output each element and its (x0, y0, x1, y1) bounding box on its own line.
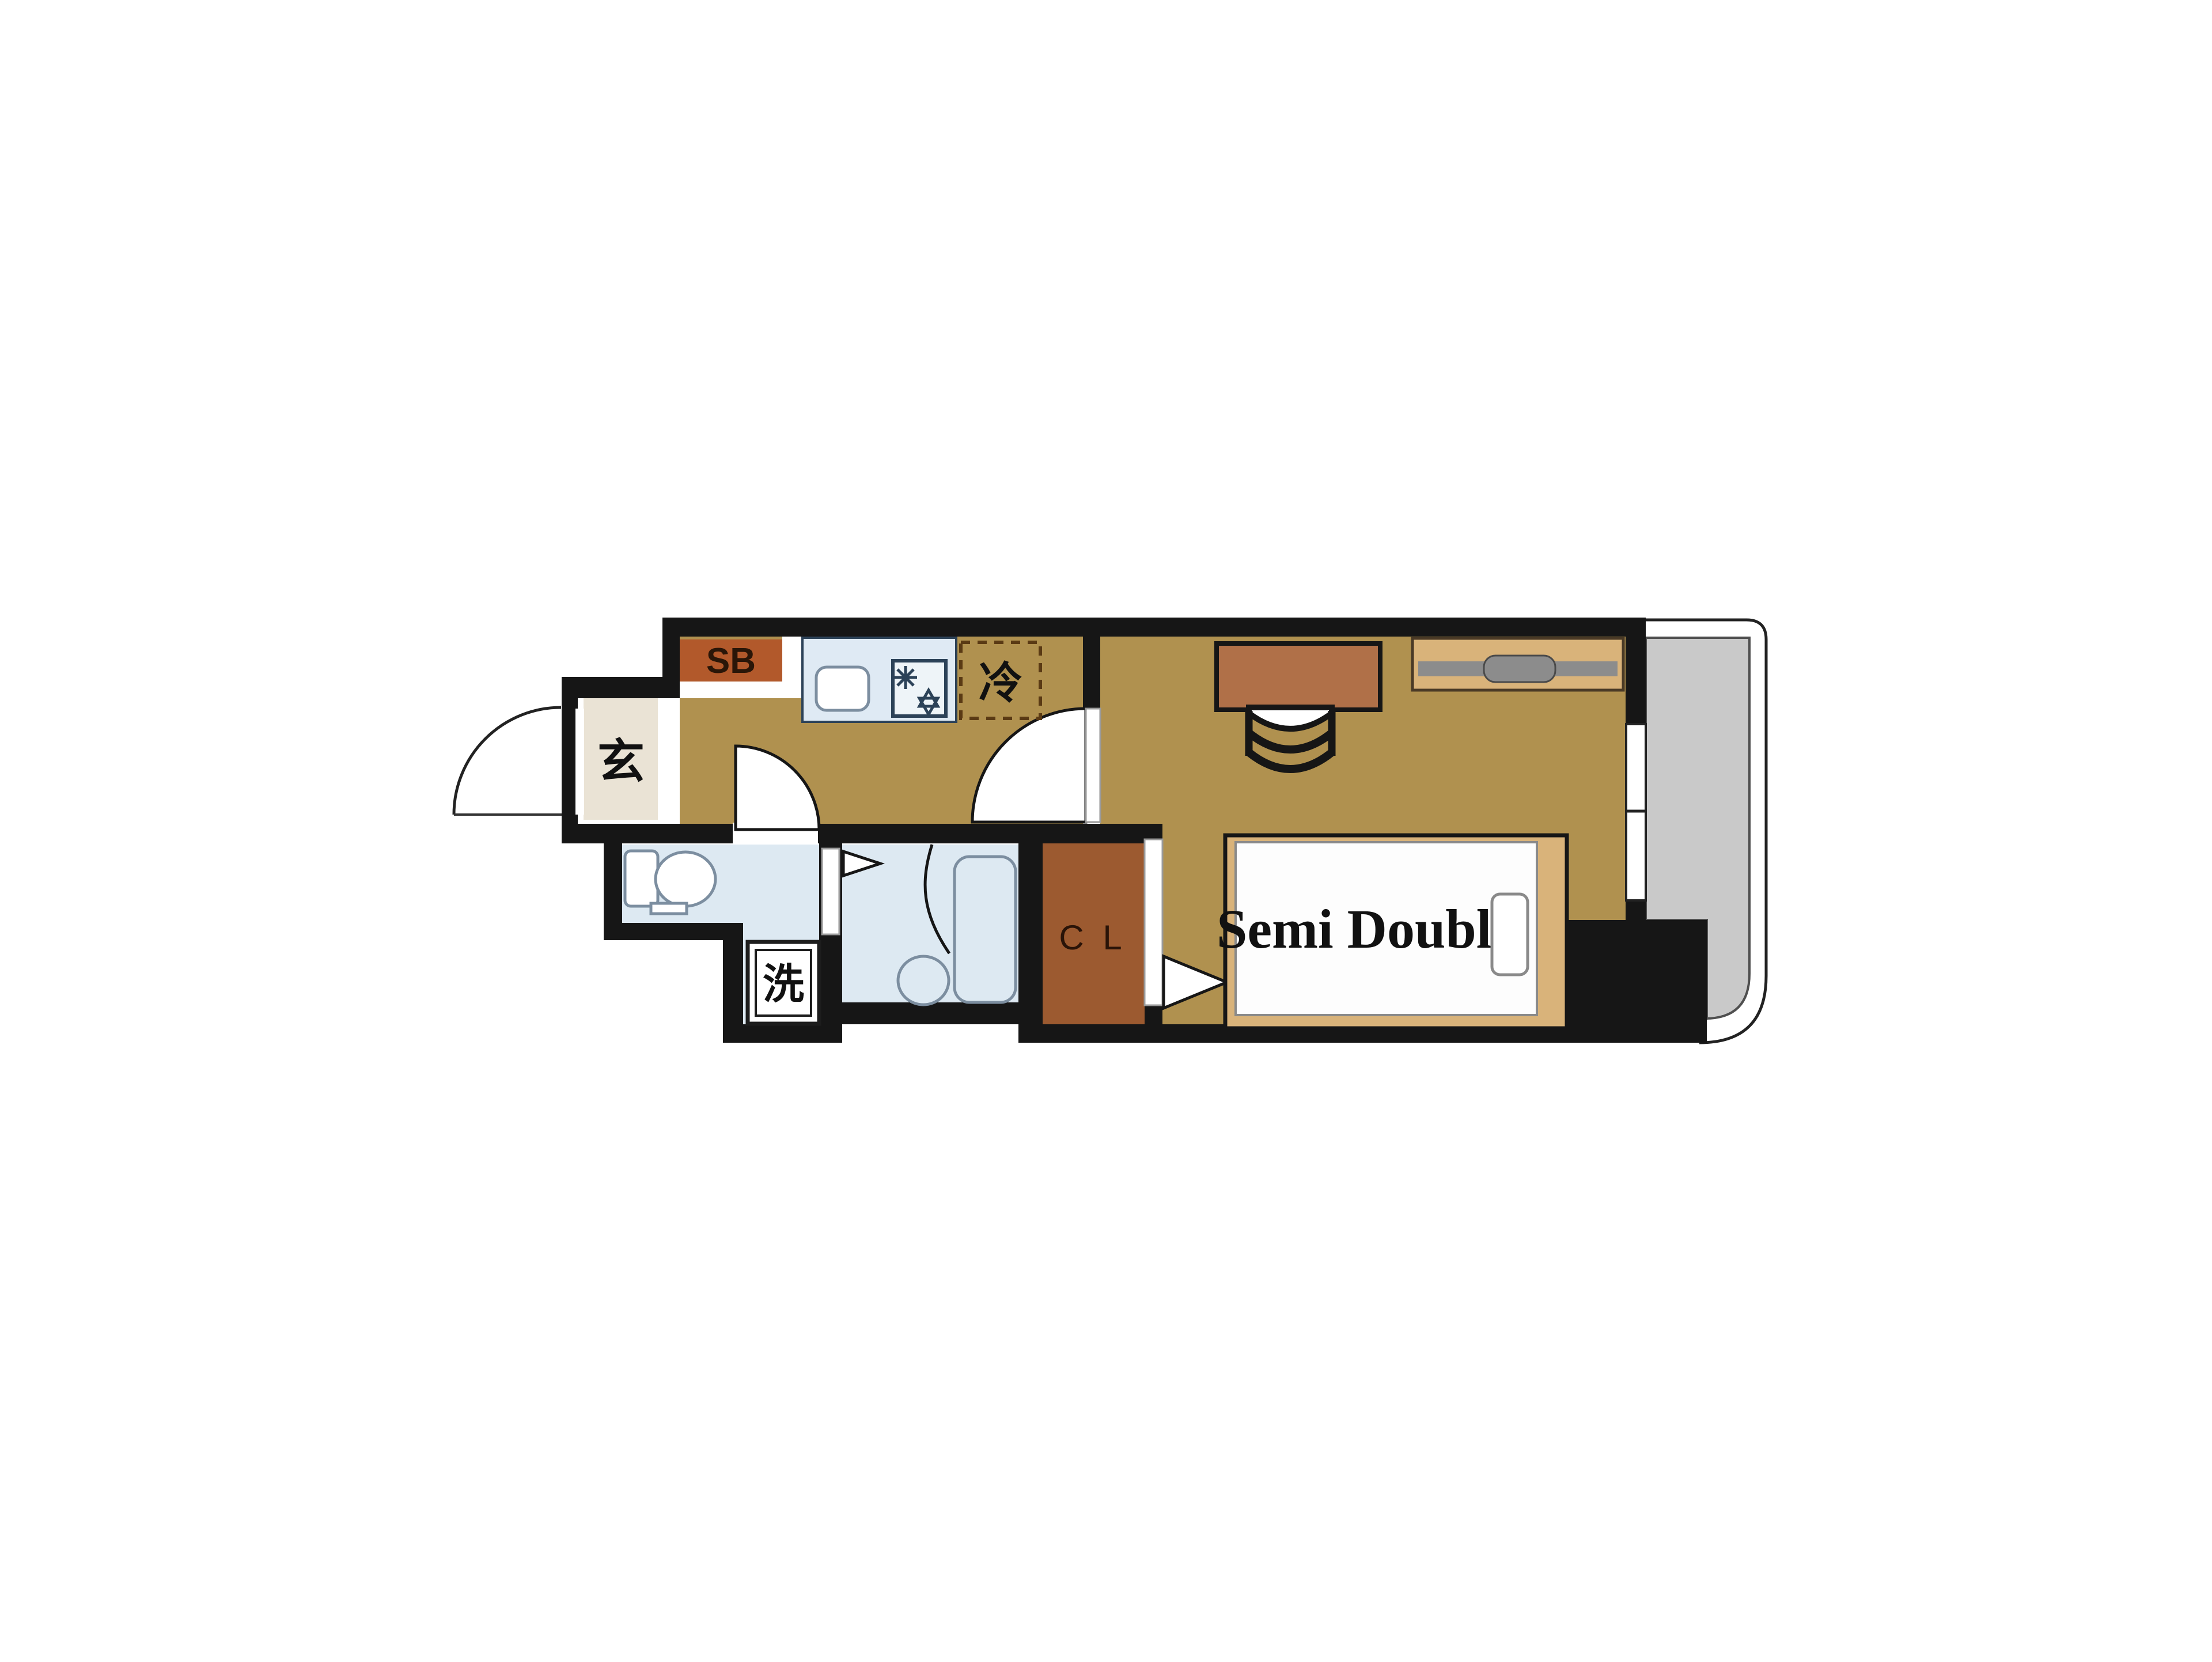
wall-right-upper (1626, 618, 1646, 724)
wall-bath-closet (1018, 824, 1043, 1043)
bathtub-icon (955, 857, 1016, 1002)
wall-entrance-left (562, 677, 578, 842)
entrance-door-swing-arc (454, 707, 561, 815)
window (1626, 724, 1646, 900)
shoe-box-label: SB (706, 641, 756, 681)
bedroom-door-leaf (1086, 709, 1100, 822)
bed-pillow (1492, 894, 1528, 975)
shelf-unit (1412, 638, 1623, 690)
wall-washer-bottom (723, 1024, 842, 1043)
floor-plan: SB 玄 冷 洗 C L (0, 0, 2212, 1659)
kitchen-sink (816, 667, 869, 710)
closet-door-leaf (1145, 839, 1162, 1005)
wall-toilet-bottom (604, 923, 743, 940)
washer-label: 洗 (763, 961, 804, 1008)
shelf-slider (1484, 656, 1555, 682)
wall-bath-bottom (819, 1002, 1043, 1024)
kitchen-gap (782, 637, 804, 698)
entrance-door-opening (575, 709, 584, 815)
wall-top (662, 618, 1646, 637)
bed-label: Semi Double (1217, 898, 1516, 960)
wall-kitchen-bedroom (1083, 618, 1100, 709)
entrance-step (658, 698, 680, 820)
washing-machine: 洗 (748, 942, 819, 1024)
wall-mid-band (562, 824, 1162, 843)
closet-label: C L (1059, 918, 1126, 957)
stove (893, 661, 946, 716)
desk (1217, 643, 1380, 710)
shoe-box-counter (680, 682, 782, 698)
bed: Semi Double (1217, 835, 1567, 1028)
wall-toilet-left (604, 824, 622, 940)
bathroom-door-leaf (822, 849, 839, 934)
wall-entrance-top (562, 677, 680, 698)
wall-service-block (1569, 920, 1707, 1039)
entrance-label: 玄 (597, 736, 645, 788)
bath-stool-icon (898, 956, 949, 1005)
wall-closet-door-base (1145, 1002, 1162, 1043)
refrigerator-label: 冷 (979, 659, 1022, 708)
